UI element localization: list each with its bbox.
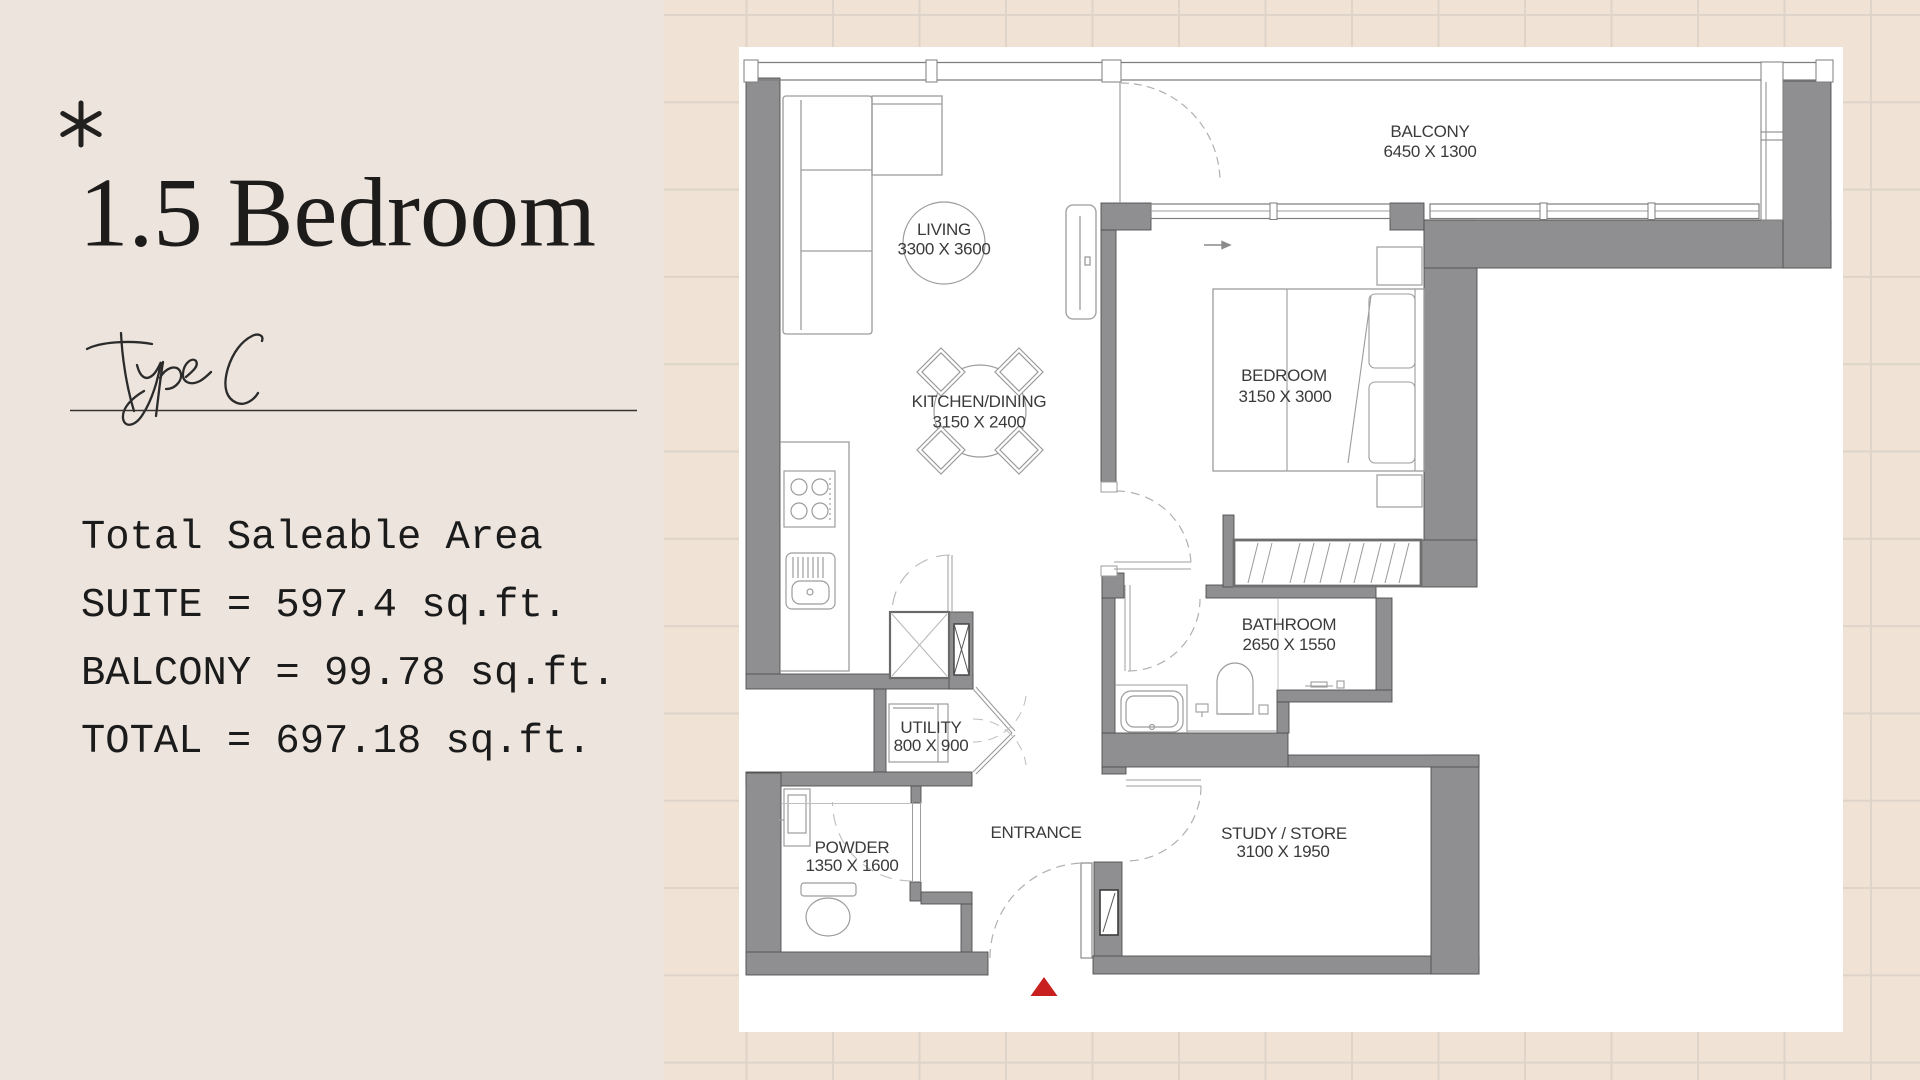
svg-text:3150 X 2400: 3150 X 2400 [932,413,1025,432]
svg-text:6450 X 1300: 6450 X 1300 [1383,142,1476,161]
svg-text:TOTAL = 697.18 sq.ft.: TOTAL = 697.18 sq.ft. [81,719,591,765]
svg-text:STUDY / STORE: STUDY / STORE [1221,824,1347,843]
svg-text:1.5 Bedroom: 1.5 Bedroom [79,159,596,268]
svg-text:800 X 900: 800 X 900 [894,736,969,755]
svg-text:3150 X 3000: 3150 X 3000 [1238,387,1331,406]
svg-text:ENTRANCE: ENTRANCE [990,823,1081,842]
svg-text:KITCHEN/DINING: KITCHEN/DINING [912,392,1047,411]
svg-text:2650 X 1550: 2650 X 1550 [1242,635,1335,654]
svg-text:3300 X 3600: 3300 X 3600 [897,240,990,259]
svg-text:BALCONY: BALCONY [1390,122,1469,141]
svg-text:3100 X 1950: 3100 X 1950 [1236,842,1329,861]
svg-text:BALCONY = 99.78 sq.ft.: BALCONY = 99.78 sq.ft. [81,651,616,697]
svg-text:POWDER: POWDER [815,838,890,857]
svg-text:UTILITY: UTILITY [900,718,961,737]
svg-text:BATHROOM: BATHROOM [1242,615,1337,634]
svg-text:1350 X 1600: 1350 X 1600 [805,856,898,875]
svg-text:LIVING: LIVING [917,220,971,239]
svg-text:Total Saleable Area: Total Saleable Area [81,515,543,561]
svg-text:SUITE = 597.4 sq.ft.: SUITE = 597.4 sq.ft. [81,583,567,629]
svg-text:BEDROOM: BEDROOM [1241,366,1327,385]
